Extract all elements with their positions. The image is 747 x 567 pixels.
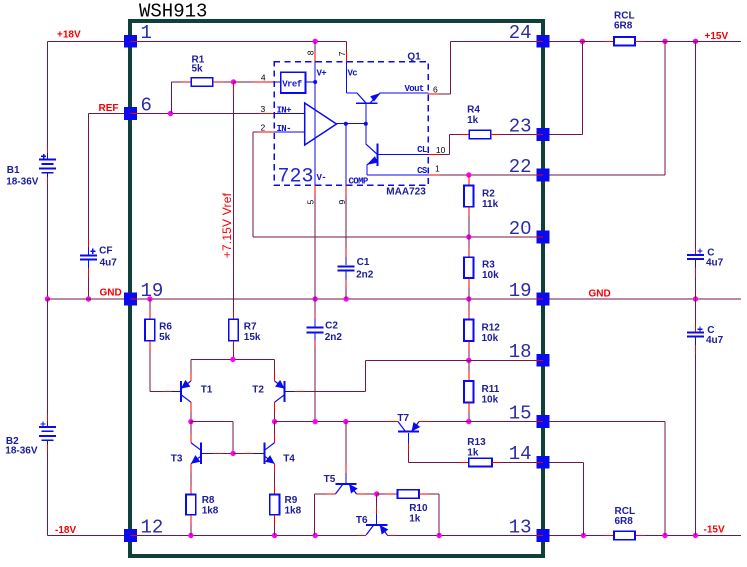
svg-text:18: 18 [509, 341, 532, 363]
svg-text:10k: 10k [482, 394, 499, 405]
svg-text:1k8: 1k8 [285, 505, 302, 516]
svg-text:1: 1 [141, 22, 152, 44]
svg-text:B1: B1 [7, 165, 20, 176]
svg-text:6R8: 6R8 [614, 21, 633, 32]
svg-text:R13: R13 [467, 437, 486, 448]
svg-text:CS: CS [417, 166, 428, 176]
svg-text:23: 23 [509, 115, 532, 137]
svg-text:IN-: IN- [277, 124, 291, 134]
svg-text:12: 12 [141, 516, 164, 538]
svg-text:R10: R10 [409, 503, 428, 514]
svg-text:9: 9 [337, 200, 347, 205]
svg-text:T7: T7 [397, 413, 409, 424]
svg-text:6R8: 6R8 [615, 516, 634, 527]
svg-text:1k: 1k [409, 513, 421, 524]
svg-text:4u7: 4u7 [706, 258, 724, 269]
svg-text:WSH913: WSH913 [139, 1, 207, 23]
svg-text:Vc: Vc [348, 69, 358, 79]
svg-text:1k: 1k [467, 115, 479, 126]
svg-text:REF: REF [99, 103, 119, 114]
svg-text:5k: 5k [159, 332, 171, 343]
svg-text:13: 13 [509, 516, 532, 538]
svg-text:R7: R7 [244, 322, 257, 333]
svg-text:R11: R11 [482, 384, 500, 395]
svg-text:R6: R6 [159, 322, 172, 333]
svg-text:R9: R9 [285, 495, 298, 506]
svg-text:24: 24 [509, 22, 532, 44]
svg-text:1k8: 1k8 [202, 505, 219, 516]
svg-text:R3: R3 [482, 260, 495, 271]
svg-text:10k: 10k [482, 333, 499, 344]
svg-text:1: 1 [435, 164, 440, 174]
svg-text:C1: C1 [357, 257, 370, 268]
svg-text:IN+: IN+ [277, 106, 292, 116]
svg-text:T4: T4 [283, 453, 295, 464]
svg-text:6: 6 [141, 94, 152, 116]
svg-text:Vout: Vout [405, 84, 424, 94]
svg-text:+7.15V Vref: +7.15V Vref [220, 192, 234, 258]
svg-text:10: 10 [436, 145, 446, 155]
svg-text:R2: R2 [482, 189, 495, 200]
svg-text:4u7: 4u7 [706, 335, 724, 346]
svg-text:COMP: COMP [349, 177, 369, 187]
svg-text:2n2: 2n2 [356, 270, 374, 281]
svg-text:V-: V- [317, 173, 327, 183]
svg-text:R4: R4 [467, 105, 480, 116]
svg-text:4: 4 [261, 73, 266, 83]
svg-text:+15V: +15V [705, 31, 729, 42]
svg-text:6: 6 [433, 85, 438, 95]
svg-text:723: 723 [278, 166, 314, 189]
svg-text:T1: T1 [201, 384, 213, 395]
svg-text:18-36V: 18-36V [5, 446, 38, 457]
svg-text:R8: R8 [202, 495, 215, 506]
svg-text:3: 3 [261, 104, 266, 114]
svg-text:T2: T2 [252, 384, 264, 395]
svg-text:R12: R12 [482, 323, 501, 334]
svg-text:C2: C2 [325, 321, 338, 332]
svg-text:11k: 11k [482, 199, 499, 210]
svg-text:18-36V: 18-36V [6, 177, 39, 188]
svg-text:19: 19 [509, 280, 532, 302]
svg-text:T3: T3 [171, 453, 183, 464]
svg-text:T5: T5 [324, 474, 336, 485]
svg-text:15: 15 [509, 402, 532, 424]
svg-text:GND: GND [589, 289, 611, 300]
svg-text:1k: 1k [467, 447, 479, 458]
svg-text:-15V: -15V [704, 525, 725, 536]
svg-text:Q1: Q1 [407, 52, 421, 63]
svg-text:14: 14 [509, 443, 532, 465]
svg-text:CF: CF [99, 246, 112, 257]
svg-text:5: 5 [306, 200, 316, 205]
svg-text:Vref: Vref [282, 79, 301, 89]
svg-text:V+: V+ [317, 69, 327, 79]
svg-text:22: 22 [509, 156, 532, 178]
svg-text:8: 8 [306, 50, 316, 55]
svg-text:4u7: 4u7 [100, 258, 118, 269]
svg-text:2n2: 2n2 [325, 332, 343, 343]
svg-text:10k: 10k [482, 270, 499, 281]
svg-text:15k: 15k [244, 332, 261, 343]
svg-text:CL: CL [417, 145, 427, 155]
svg-text:T6: T6 [356, 515, 368, 526]
svg-text:+18V: +18V [57, 30, 81, 41]
svg-text:-18V: -18V [55, 525, 76, 536]
svg-text:GND: GND [100, 288, 122, 299]
svg-text:7: 7 [337, 51, 347, 56]
svg-text:5k: 5k [192, 64, 204, 75]
svg-text:MAA723: MAA723 [386, 187, 426, 198]
svg-text:2: 2 [261, 123, 266, 133]
svg-text:19: 19 [141, 280, 164, 302]
